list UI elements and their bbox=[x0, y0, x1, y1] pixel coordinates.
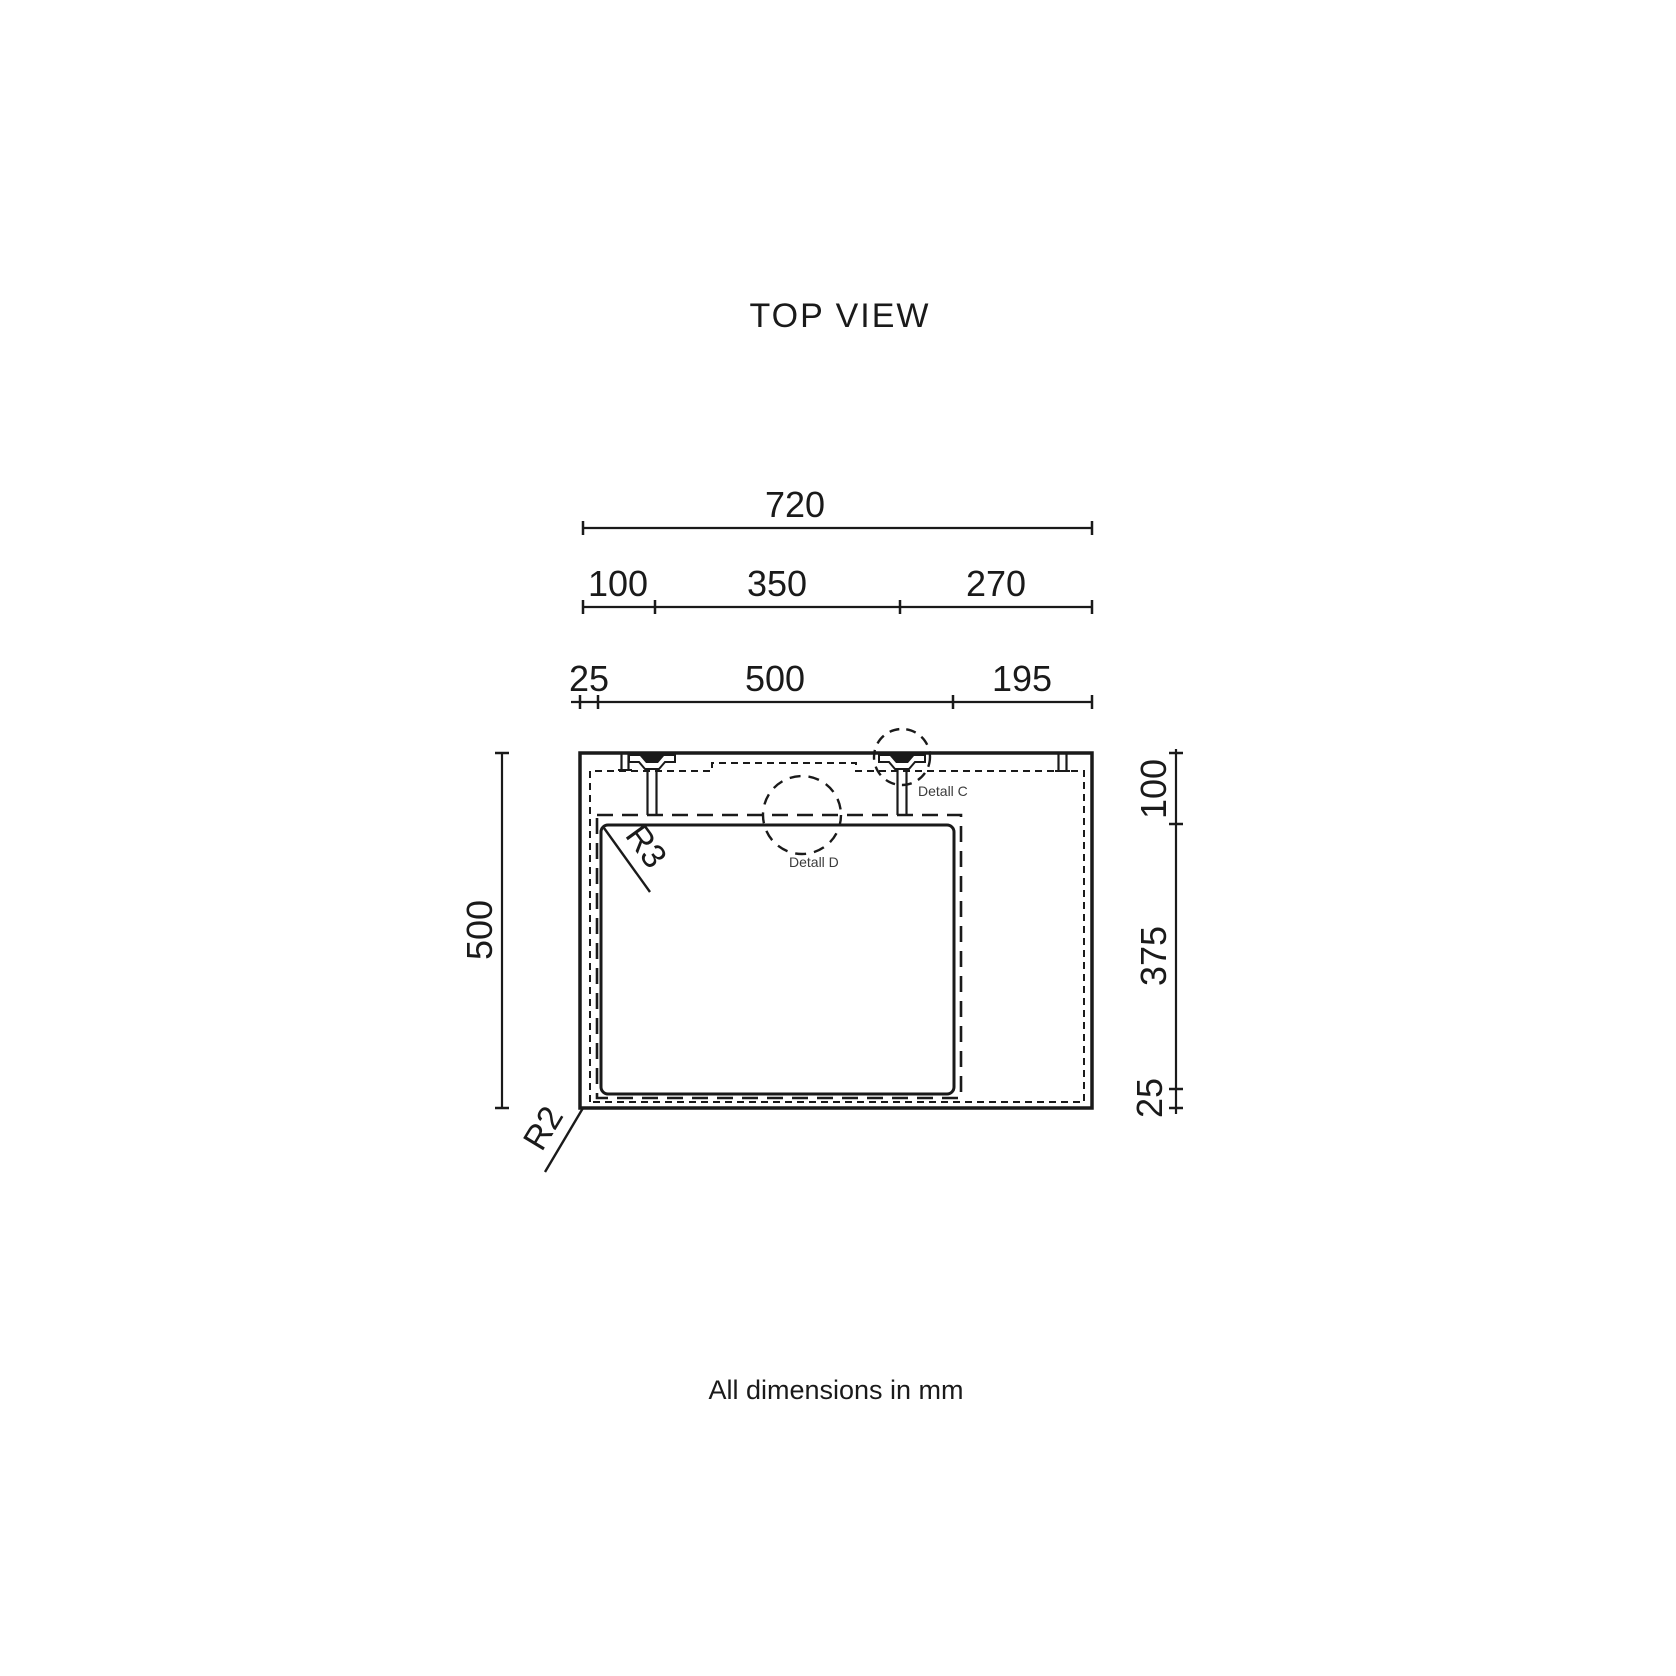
right-clip-channel bbox=[898, 770, 907, 815]
dim-row-clip-positions: 100 350 270 bbox=[583, 563, 1092, 614]
detail-c-label: Detall C bbox=[918, 783, 968, 799]
dim-right-heights: 100 375 25 bbox=[1129, 749, 1183, 1118]
clip-wedge bbox=[640, 756, 664, 763]
dim-row-cavity: 25 500 195 bbox=[569, 658, 1092, 709]
right-slot bbox=[1055, 753, 1070, 771]
technical-drawing-canvas: TOP VIEW bbox=[0, 0, 1676, 1676]
left-mounting-clip bbox=[629, 755, 675, 769]
radius-r2-callout: R2 bbox=[516, 1100, 583, 1172]
radius-r3-callout: R3 bbox=[604, 818, 674, 892]
units-note: All dimensions in mm bbox=[708, 1375, 963, 1405]
dim-label-100: 100 bbox=[588, 563, 648, 604]
drawing-title: TOP VIEW bbox=[749, 297, 930, 335]
dim-label-right-25: 25 bbox=[1129, 1078, 1170, 1118]
dim-label-right-375: 375 bbox=[1133, 926, 1174, 986]
detail-d-callout: Detall D bbox=[763, 776, 841, 870]
left-clip-channel bbox=[648, 770, 657, 815]
detail-d-label: Detall D bbox=[789, 854, 839, 870]
clip-wedge bbox=[890, 756, 914, 763]
dim-label-270: 270 bbox=[966, 563, 1026, 604]
r2-label: R2 bbox=[516, 1100, 571, 1157]
dim-left-height: 500 bbox=[459, 753, 509, 1108]
dim-label-25: 25 bbox=[569, 658, 609, 699]
dim-label-500: 500 bbox=[745, 658, 805, 699]
dim-label-right-100: 100 bbox=[1133, 759, 1174, 819]
drawing-sheet: TOP VIEW bbox=[0, 0, 1676, 1676]
dim-label-350: 350 bbox=[747, 563, 807, 604]
dim-label-left-500: 500 bbox=[459, 900, 500, 960]
right-mounting-clip bbox=[879, 755, 925, 769]
detail-c-callout: Detall C bbox=[874, 729, 968, 799]
dim-label-720: 720 bbox=[765, 484, 825, 525]
dim-label-195: 195 bbox=[992, 658, 1052, 699]
dim-row-overall: 720 bbox=[583, 484, 1092, 535]
